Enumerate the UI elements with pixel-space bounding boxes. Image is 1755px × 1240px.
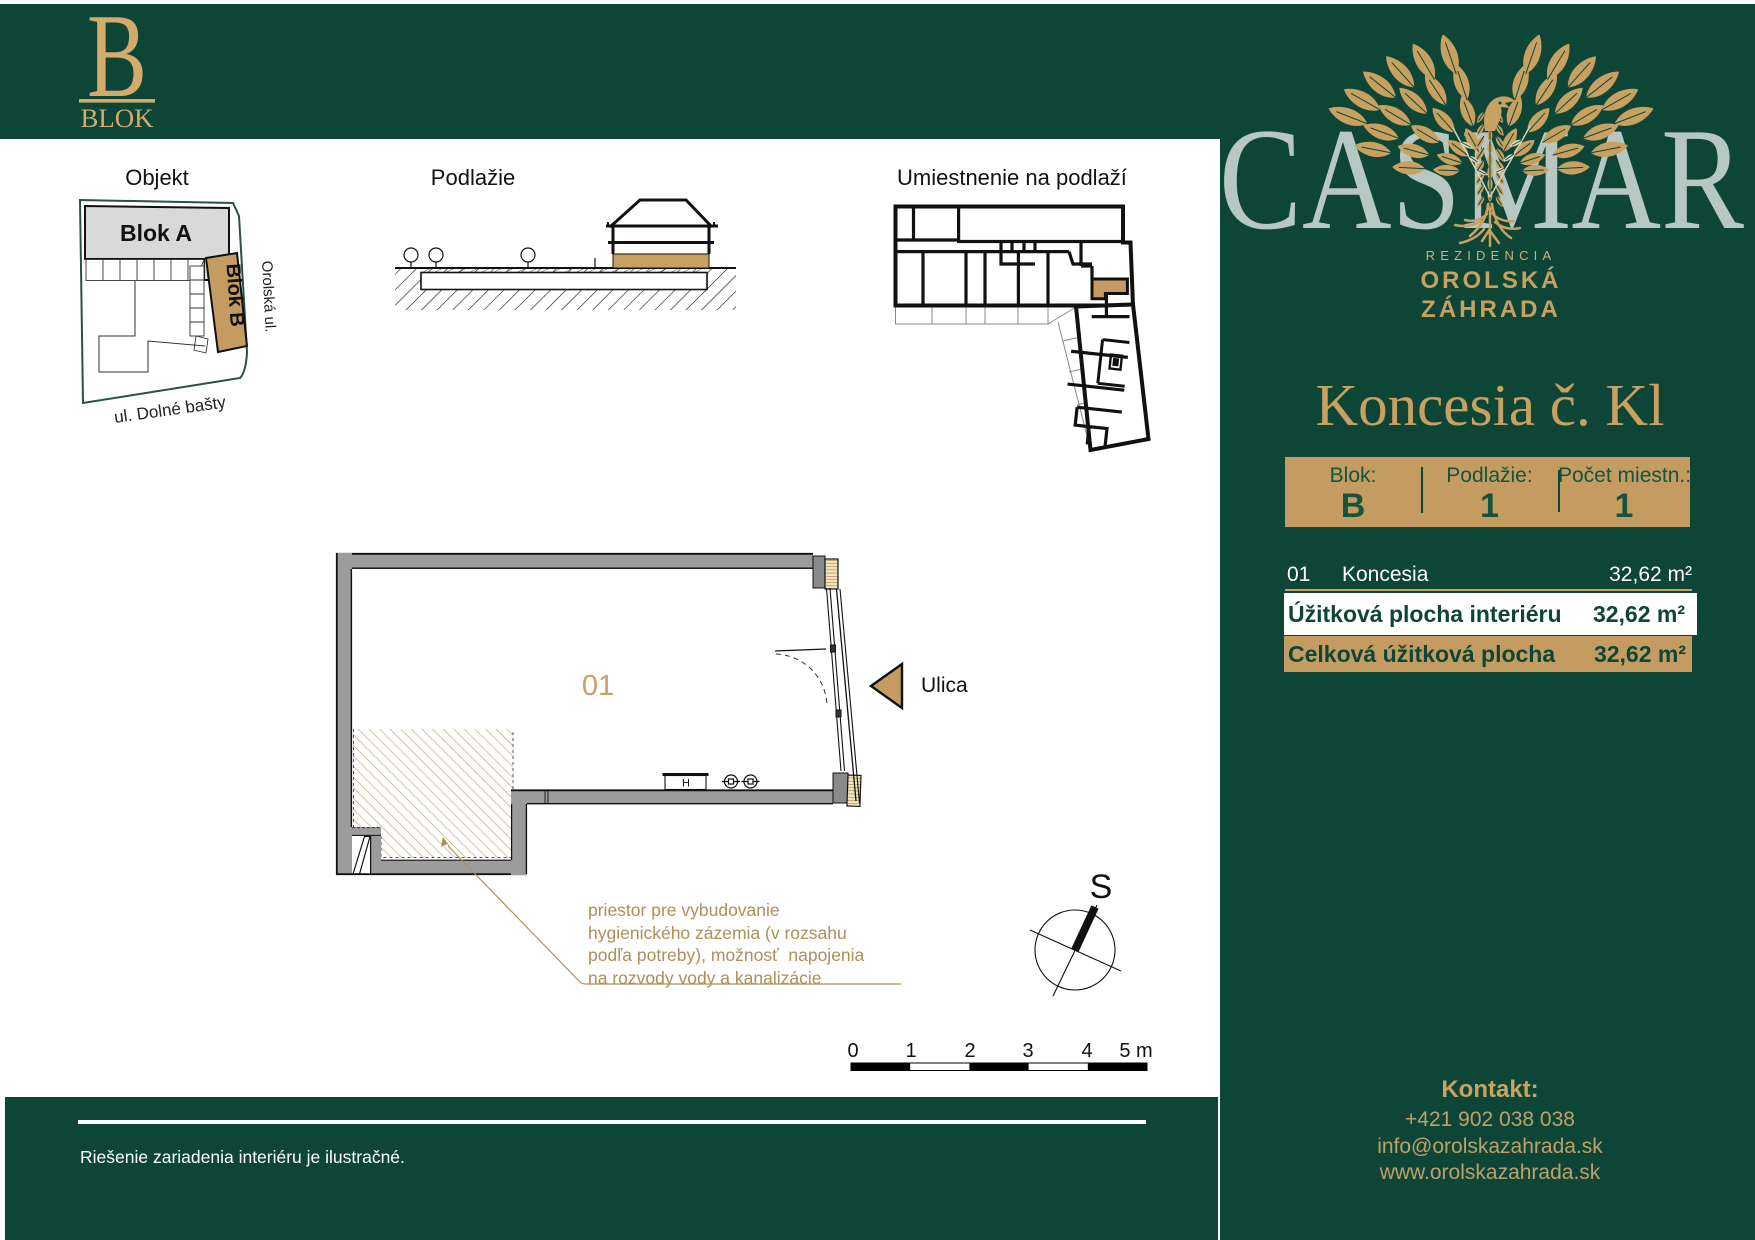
svg-text:0: 0: [847, 1040, 858, 1062]
svg-text:01: 01: [582, 670, 614, 702]
svg-text:Blok A: Blok A: [120, 220, 192, 246]
svg-text:ul. Dolné bašty: ul. Dolné bašty: [113, 392, 227, 427]
svg-text:1: 1: [905, 1040, 916, 1062]
svg-text:Orolská ul.: Orolská ul.: [258, 260, 279, 332]
svg-text:5 m: 5 m: [1119, 1040, 1152, 1062]
svg-text:H: H: [682, 778, 690, 790]
svg-text:Blok B: Blok B: [222, 263, 248, 328]
svg-text:3: 3: [1022, 1040, 1033, 1062]
svg-text:S: S: [1090, 868, 1113, 906]
svg-text:BLOK: BLOK: [81, 104, 154, 133]
svg-text:2: 2: [964, 1040, 975, 1062]
svg-text:4: 4: [1081, 1040, 1092, 1062]
